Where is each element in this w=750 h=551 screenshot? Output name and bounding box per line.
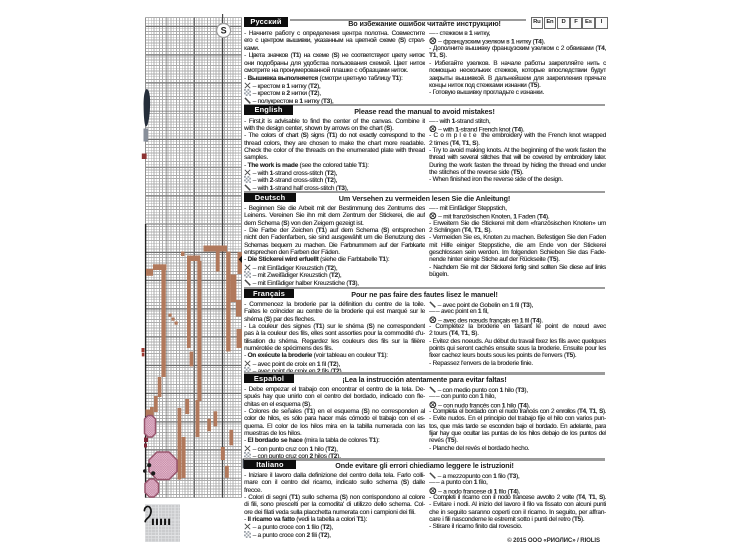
svg-text:S: S (221, 26, 227, 36)
